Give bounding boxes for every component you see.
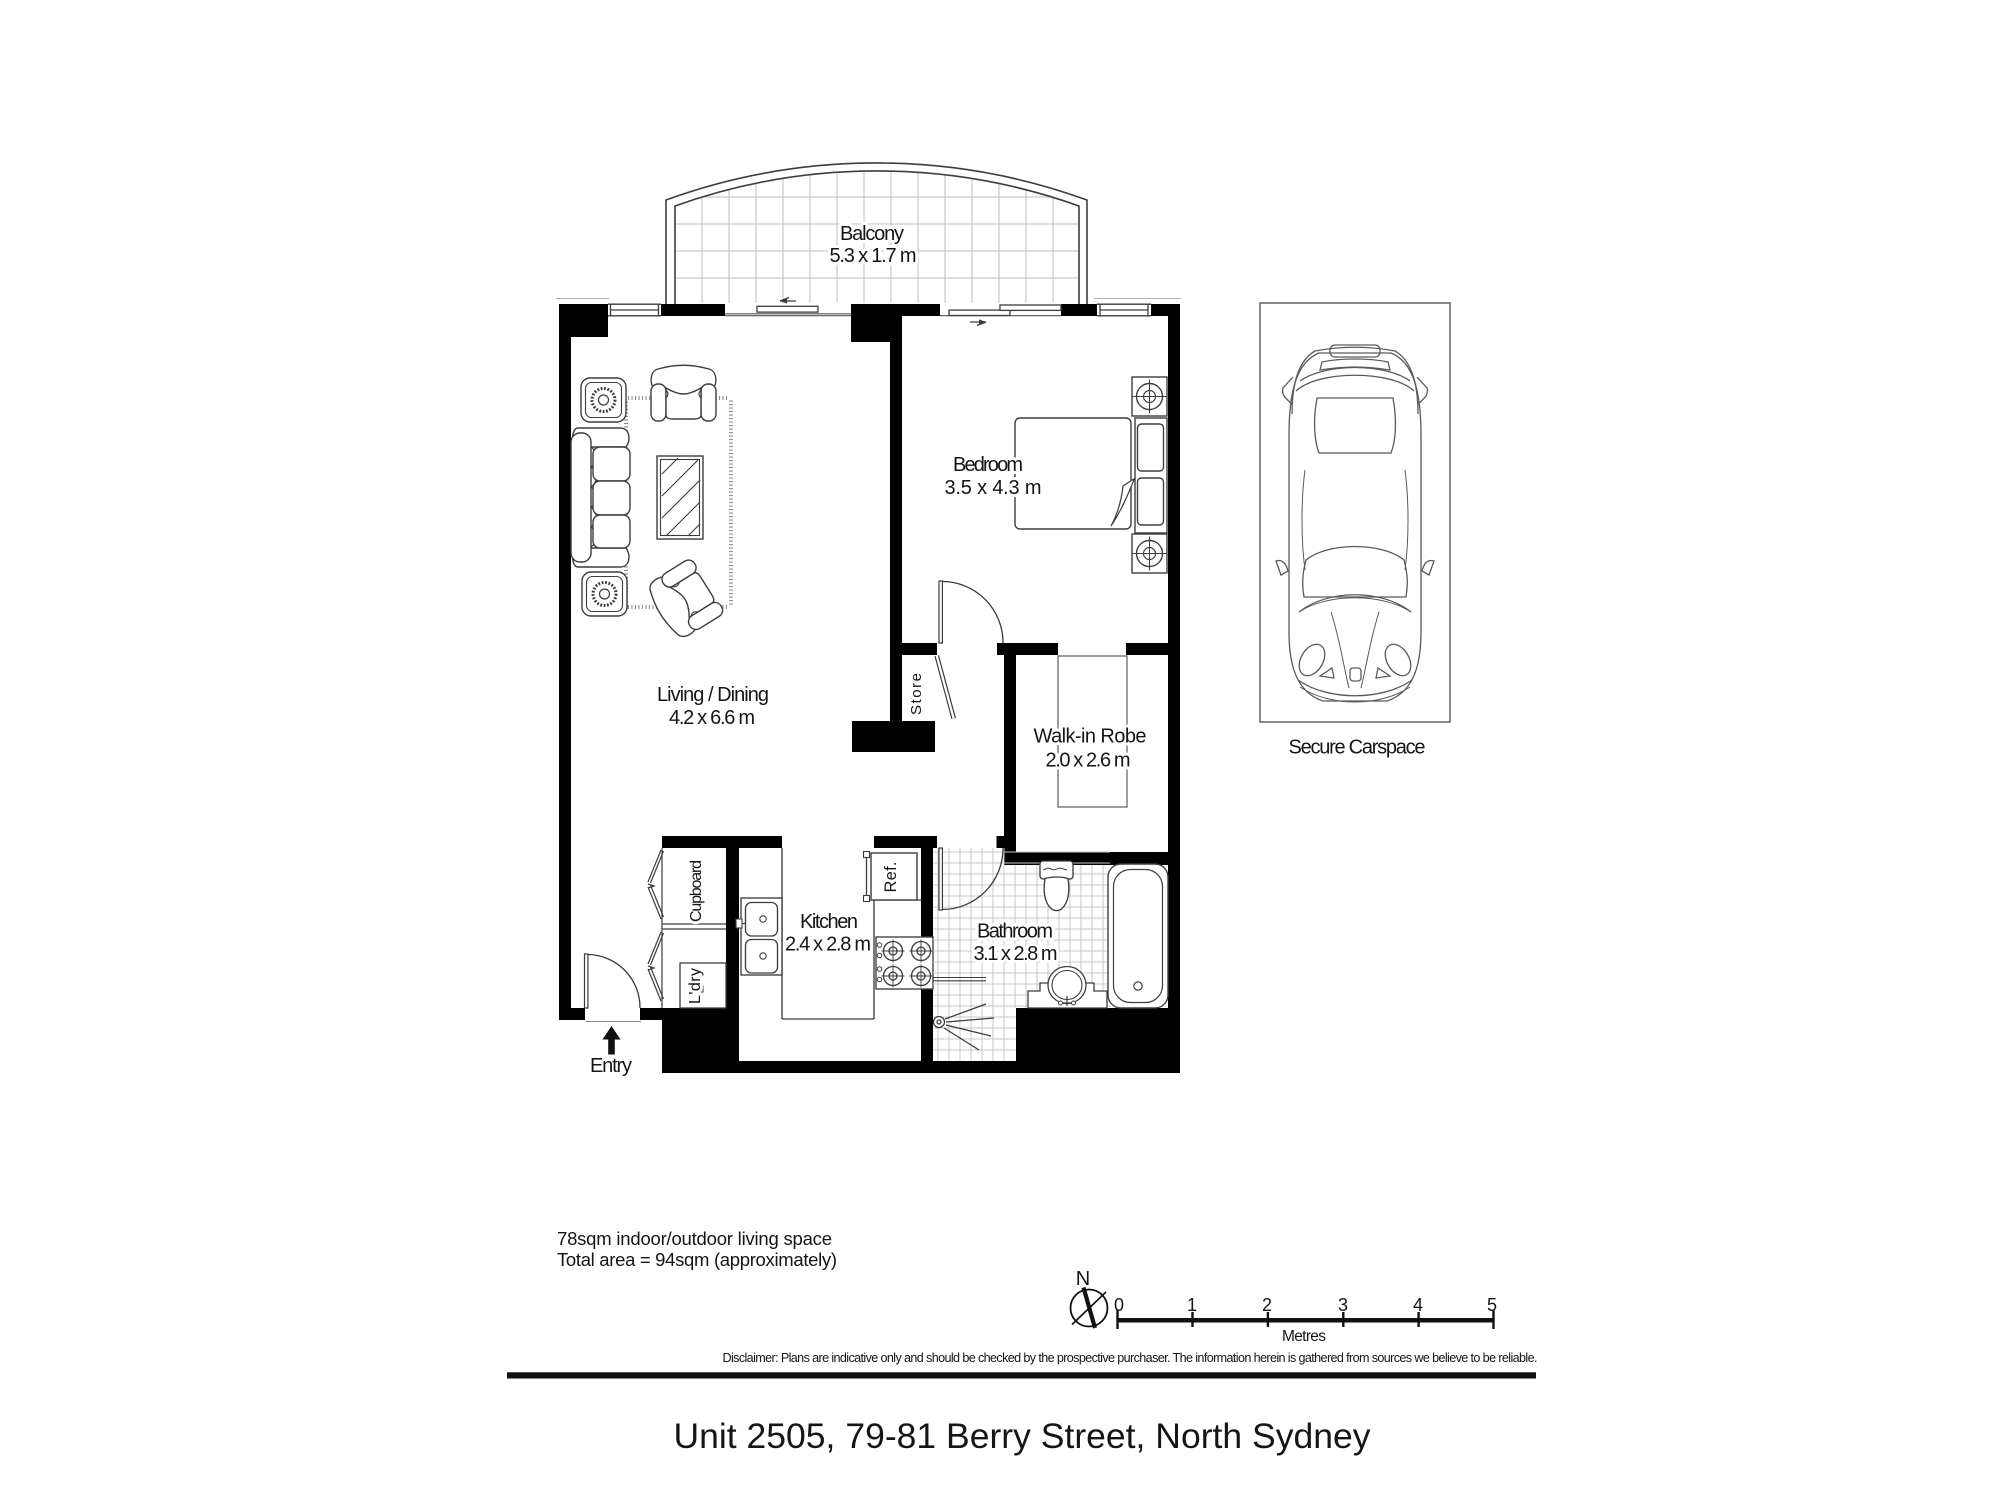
svg-text:3: 3	[1338, 1295, 1348, 1315]
svg-text:Total area = 94sqm (approximat: Total area = 94sqm (approximately)	[557, 1249, 837, 1270]
svg-text:Walk-in Robe: Walk-in Robe	[1034, 726, 1147, 748]
svg-text:Kitchen: Kitchen	[800, 911, 858, 933]
svg-text:78sqm indoor/outdoor living sp: 78sqm indoor/outdoor living space	[557, 1228, 832, 1249]
svg-text:N: N	[1076, 1268, 1090, 1290]
svg-text:5.3 x 1.7 m: 5.3 x 1.7 m	[830, 245, 917, 267]
svg-text:5: 5	[1487, 1295, 1497, 1315]
svg-text:1: 1	[1187, 1295, 1197, 1315]
svg-text:Unit 2505, 79-81 Berry Street,: Unit 2505, 79-81 Berry Street, North Syd…	[674, 1416, 1371, 1456]
svg-text:2.4 x 2.8 m: 2.4 x 2.8 m	[785, 934, 871, 956]
svg-text:Bathroom: Bathroom	[977, 921, 1053, 943]
svg-text:Bedroom: Bedroom	[953, 454, 1023, 476]
svg-text:Living / Dining: Living / Dining	[657, 684, 769, 706]
svg-text:4: 4	[1413, 1295, 1423, 1315]
svg-text:Store: Store	[908, 673, 925, 715]
svg-text:3.1 x 2.8 m: 3.1 x 2.8 m	[974, 943, 1058, 965]
svg-text:Entry: Entry	[590, 1055, 632, 1077]
svg-text:0: 0	[1114, 1295, 1124, 1315]
svg-text:2.0 x 2.6 m: 2.0 x 2.6 m	[1046, 750, 1131, 772]
svg-text:Balcony: Balcony	[840, 223, 904, 245]
svg-text:Secure Carspace: Secure Carspace	[1289, 737, 1426, 759]
svg-text:Cupboard: Cupboard	[688, 860, 705, 922]
svg-text:Metres: Metres	[1282, 1328, 1326, 1345]
svg-text:Ref.: Ref.	[882, 862, 900, 893]
svg-text:3.5 x 4.3 m: 3.5 x 4.3 m	[945, 477, 1042, 499]
svg-text:2: 2	[1262, 1295, 1272, 1315]
svg-text:4.2 x 6.6 m: 4.2 x 6.6 m	[669, 707, 755, 729]
svg-text:Disclaimer: Plans are indicati: Disclaimer: Plans are indicative only an…	[723, 1351, 1538, 1365]
svg-text:L'dry: L'dry	[687, 968, 704, 1004]
